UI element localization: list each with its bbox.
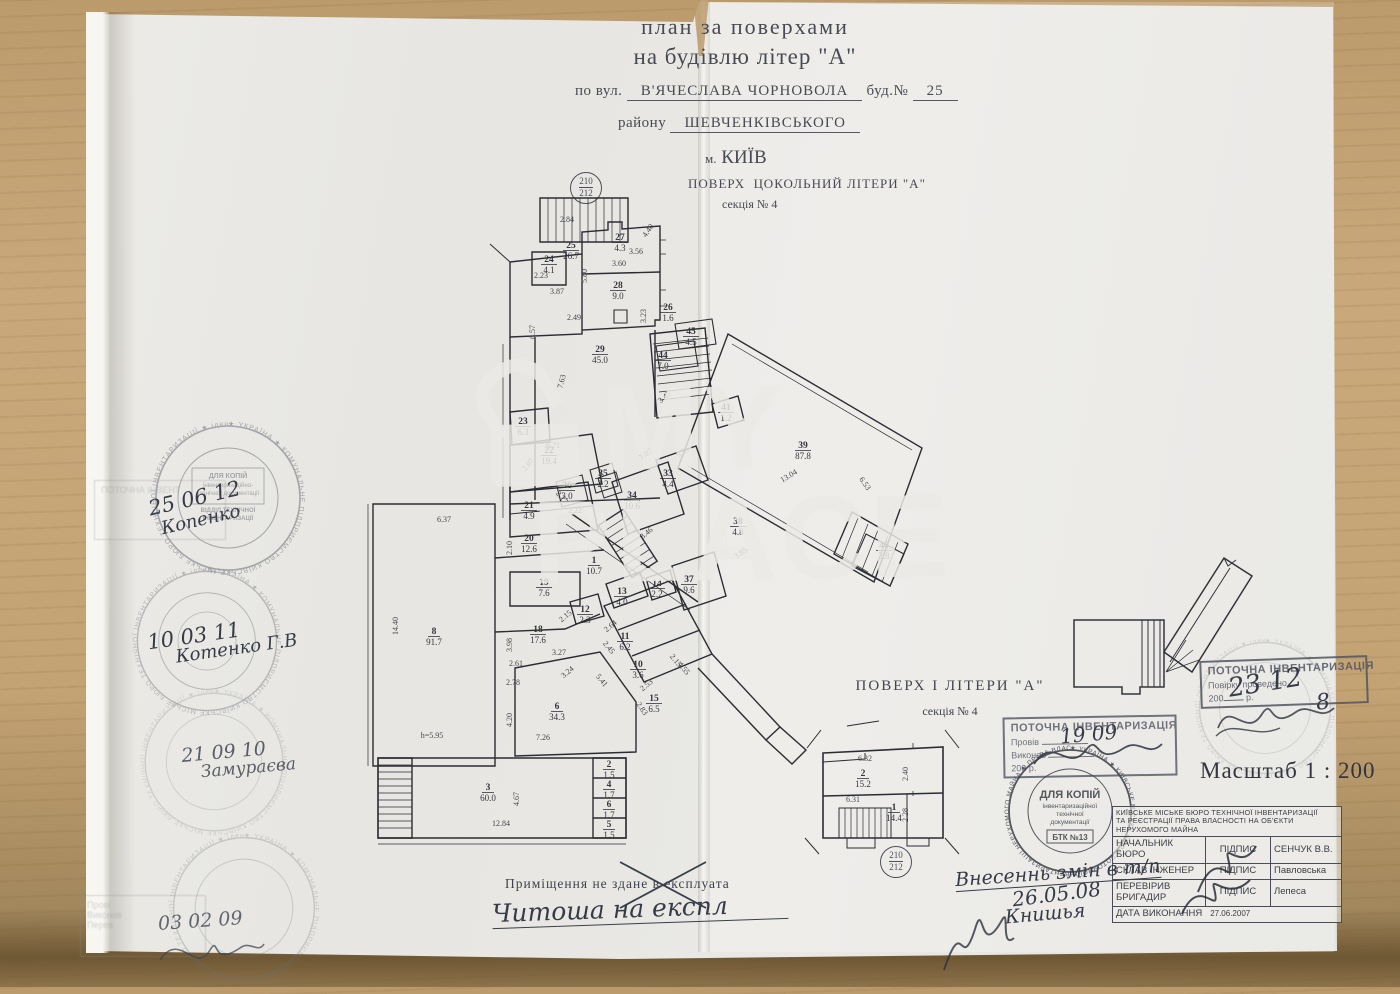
svg-text:2.2: 2.2 <box>597 479 608 489</box>
district-value: ШЕВЧЕНКІВСЬКОГО <box>670 115 860 133</box>
room-label: 261.6 <box>660 303 676 323</box>
svg-text:2: 2 <box>861 769 866 779</box>
room-label: 134.0 <box>614 587 630 607</box>
svg-text:34: 34 <box>627 491 637 501</box>
svg-text:37: 37 <box>684 575 694 585</box>
dimension-label: 7.63 <box>555 373 567 389</box>
svg-text:1.6: 1.6 <box>662 313 674 323</box>
street-value: В'ЯЧЕСЛАВА ЧОРНОВОЛА <box>627 83 863 101</box>
svg-text:34.3: 34.3 <box>549 712 565 722</box>
svg-text:15: 15 <box>649 694 659 704</box>
room-label: 1817.6 <box>530 625 546 645</box>
room-label: 334.4 <box>660 469 676 489</box>
date-row: ДАТА ВИКОНАННЯ 27.06.2007 <box>1113 906 1342 922</box>
room-label: 114.4 <box>886 803 902 823</box>
svg-text:12: 12 <box>580 605 590 615</box>
room-label: 122.3 <box>577 605 593 625</box>
dimension-label: 1.07 <box>637 446 654 461</box>
date-value: 27.06.2007 <box>1210 909 1250 918</box>
svg-text:33: 33 <box>663 469 673 479</box>
svg-text:19.4: 19.4 <box>541 456 557 466</box>
room-label: 289.0 <box>610 281 626 301</box>
dimension-label: 3.87 <box>550 287 564 296</box>
signature-cell: ПІДПИС <box>1206 879 1271 906</box>
floor1-sheet-badge: 210 212 <box>880 846 912 878</box>
dimension-label: 2.78 <box>506 678 520 687</box>
dimension-label: 2.40 <box>901 767 910 781</box>
dimension-label: 2.07 <box>520 456 536 473</box>
floor1-sheet-top: 210 <box>889 851 903 861</box>
table-row: ПЕРЕВІРИВ БРИГАДИР ПІДПИС Лепеса <box>1113 879 1342 906</box>
name-cell: Лепеса <box>1271 879 1342 906</box>
for-copies-line2: інвентаризаційної <box>1043 802 1098 810</box>
svg-text:14: 14 <box>652 579 662 589</box>
room-label: 3987.8 <box>795 441 811 461</box>
svg-text:1.2: 1.2 <box>720 413 731 423</box>
svg-text:24: 24 <box>544 255 554 265</box>
building-number: 25 <box>913 83 958 101</box>
scanned-floor-plan-document: план за поверхами на будівлю літер "А" п… <box>0 0 1400 987</box>
room-label: 634.3 <box>549 702 565 722</box>
svg-text:20: 20 <box>524 534 534 544</box>
dimension-label: 2.64 <box>602 618 619 634</box>
dimension-label: 6.53 <box>857 475 872 492</box>
svg-text:4.5: 4.5 <box>685 337 697 347</box>
svg-text:36: 36 <box>562 481 572 491</box>
room-label: 41.7 <box>603 780 615 800</box>
svg-text:10.7: 10.7 <box>586 566 602 576</box>
svg-text:38: 38 <box>733 517 743 527</box>
svg-text:1.5: 1.5 <box>603 770 615 780</box>
dimension-label: 3.56 <box>629 247 643 256</box>
signature-cell: ПІДПИС <box>1206 837 1271 864</box>
svg-text:25: 25 <box>566 241 576 251</box>
table-row: ДАТА ВИКОНАННЯ 27.06.2007 <box>1113 906 1342 922</box>
svg-text:2: 2 <box>607 760 612 770</box>
svg-text:4.9: 4.9 <box>523 511 535 521</box>
svg-text:1.7: 1.7 <box>603 810 615 820</box>
svg-text:7.0: 7.0 <box>657 361 669 371</box>
svg-text:21: 21 <box>524 501 534 511</box>
svg-text:87.8: 87.8 <box>795 451 811 461</box>
room-label: 197.6 <box>536 578 552 598</box>
svg-text:35: 35 <box>598 469 608 479</box>
svg-text:44: 44 <box>658 351 668 361</box>
dimension-label: 6.32 <box>858 754 872 763</box>
svg-text:1.5: 1.5 <box>603 830 615 840</box>
svg-text:91.7: 91.7 <box>426 637 442 647</box>
district-label: району <box>618 115 666 131</box>
dimension-label: 6.57 <box>528 325 537 339</box>
dimension-label: 5.80 <box>580 269 589 283</box>
svg-text:7.6: 7.6 <box>538 588 550 598</box>
dimension-label: 3.60 <box>612 259 626 268</box>
role-cell: ПЕРЕВІРИВ БРИГАДИР <box>1113 879 1206 906</box>
room-label: 891.7 <box>426 627 442 647</box>
scale-label: Масштаб 1 : 200 <box>1200 758 1375 784</box>
dimension-label: 2.23 <box>534 271 548 280</box>
dimension-label: 2.84 <box>560 215 574 224</box>
svg-text:28: 28 <box>613 281 623 291</box>
room-label: 142.2 <box>649 579 665 599</box>
svg-text:39: 39 <box>798 441 808 451</box>
room-label: 110.7 <box>586 556 602 576</box>
svg-text:5: 5 <box>607 820 612 830</box>
room-label: 21.5 <box>603 760 615 780</box>
stamp-right-year: 200 <box>1208 693 1223 704</box>
dimension-label: 2.45 <box>601 639 617 656</box>
dimension-label: 6.37 <box>437 515 451 524</box>
dimension-label: 14.40 <box>391 617 400 635</box>
dimension-label: 2.28 <box>901 808 910 822</box>
room-label: 384.8 <box>730 517 746 537</box>
dimension-label: 12.84 <box>492 819 510 828</box>
dimension-label: 5.41 <box>594 672 610 689</box>
bti-header: КИЇВСЬКЕ МІСЬКЕ БЮРО ТЕХНІЧНОЇ ІНВЕНТАРИ… <box>1113 807 1342 837</box>
district-line: району ШЕВЧЕНКІВСЬКОГО <box>618 115 860 132</box>
room-label: 215.2 <box>855 769 871 789</box>
city-value: КИЇВ <box>721 147 766 168</box>
not-commissioned-note: Приміщення не здане в експлуата <box>505 876 730 892</box>
svg-text:15.2: 15.2 <box>855 779 871 789</box>
date-label: ДАТА ВИКОНАННЯ <box>1116 908 1202 919</box>
svg-text:8: 8 <box>432 627 437 637</box>
svg-text:23: 23 <box>518 417 528 427</box>
street-line: по вул. В'ЯЧЕСЛАВА ЧОРНОВОЛА буд.№ 25 <box>575 83 958 100</box>
svg-text:17.6: 17.6 <box>530 635 546 645</box>
street-label: по вул. <box>575 83 622 99</box>
dimension-label: 2.22 <box>568 506 582 515</box>
svg-text:2.2: 2.2 <box>651 589 662 599</box>
dimension-label: 6.71 <box>546 441 560 450</box>
svg-text:4: 4 <box>607 780 612 790</box>
dimension-label: 6.31 <box>846 795 860 804</box>
svg-text:60.0: 60.0 <box>480 793 496 803</box>
svg-text:14.4: 14.4 <box>886 813 902 823</box>
dimension-label: 5.26 <box>674 444 691 459</box>
name-cell: Павловська <box>1271 864 1342 880</box>
room-label: 411.2 <box>718 403 734 423</box>
svg-text:1: 1 <box>892 803 897 813</box>
svg-text:12.6: 12.6 <box>521 544 537 554</box>
svg-text:6: 6 <box>607 800 612 810</box>
svg-text:45.0: 45.0 <box>592 355 608 365</box>
dimension-label: 3.85 <box>732 545 749 560</box>
name-cell: СЕНЧУК В.В. <box>1271 837 1342 864</box>
dimension-label: 3.23 <box>639 309 648 323</box>
floor1-plan: 215.2114.46.322.406.312.28 <box>795 718 975 868</box>
room-label: 2012.6 <box>521 534 537 554</box>
svg-text:4.8: 4.8 <box>732 527 744 537</box>
svg-text:4.4: 4.4 <box>662 479 674 489</box>
dimension-label: 3.46 <box>638 525 655 541</box>
room-label: 103.6 <box>630 660 646 680</box>
svg-text:26.7: 26.7 <box>563 251 579 261</box>
svg-text:45: 45 <box>686 327 696 337</box>
document-title-line2: на будівлю літер "А" <box>575 44 915 70</box>
signature-cell: ПІДПИС <box>1206 864 1271 880</box>
svg-text:2.8: 2.8 <box>878 551 890 561</box>
room-label: 236.3 <box>515 417 531 437</box>
svg-text:41: 41 <box>721 403 731 413</box>
svg-text:46: 46 <box>879 541 889 551</box>
svg-text:6: 6 <box>555 702 560 712</box>
room-label: 3410.6 <box>624 491 640 511</box>
dimension-label: 13.04 <box>779 467 799 484</box>
dimension-label: 2.61 <box>509 659 523 668</box>
svg-text:6.2: 6.2 <box>619 642 630 652</box>
svg-text:27: 27 <box>615 233 625 243</box>
bti-header-line3: НЕРУХОМОГО МАЙНА <box>1116 826 1338 834</box>
room-label: 214.9 <box>521 501 537 521</box>
room-label: 274.3 <box>612 233 628 253</box>
dimension-label: 4.40 <box>640 222 655 239</box>
stamp-right-hand-year: 8 <box>1315 689 1332 715</box>
room-label: 379.6 <box>681 575 697 595</box>
dimension-label: 3.45 <box>656 389 673 405</box>
dimension-label: 3.24 <box>559 664 576 680</box>
svg-text:10: 10 <box>633 660 643 670</box>
room-label: 2945.0 <box>592 345 608 365</box>
building-label: буд.№ <box>867 83 909 99</box>
room-label: 2526.7 <box>563 241 579 261</box>
dimension-label: 3.98 <box>505 638 514 652</box>
dimension-label: 4.20 <box>505 713 514 727</box>
dimension-label: 2.49 <box>567 313 581 322</box>
svg-text:29: 29 <box>595 345 605 355</box>
svg-text:10.6: 10.6 <box>624 501 640 511</box>
svg-text:4.3: 4.3 <box>614 243 626 253</box>
svg-text:4.0: 4.0 <box>616 597 628 607</box>
svg-text:9.6: 9.6 <box>683 585 695 595</box>
svg-text:26: 26 <box>663 303 673 313</box>
room-label: 61.7 <box>603 800 615 820</box>
ghost-row-1: Прові <box>87 900 199 910</box>
svg-text:18: 18 <box>533 625 543 635</box>
dimension-label: 3.27 <box>552 648 566 657</box>
for-copies-line1: ДЛЯ КОПІЙ <box>1040 788 1101 801</box>
room-label: 462.8 <box>876 541 892 561</box>
svg-text:6.5: 6.5 <box>648 704 660 714</box>
for-copies-btk: БТК №13 <box>1052 833 1088 842</box>
svg-text:3.6: 3.6 <box>632 670 644 680</box>
room-label: 447.0 <box>655 351 671 371</box>
dimension-label: 2.15 <box>557 608 574 624</box>
svg-text:1: 1 <box>592 556 597 566</box>
svg-text:6.3: 6.3 <box>517 427 529 437</box>
dimension-label: 2.10 <box>505 541 514 555</box>
room-label: 360.0 <box>480 783 496 803</box>
svg-text:19: 19 <box>539 578 549 588</box>
for-copies-line4: документації <box>1050 818 1089 826</box>
svg-text:2.3: 2.3 <box>579 615 591 625</box>
svg-text:13: 13 <box>617 587 627 597</box>
city-label: м. <box>705 151 716 166</box>
dimension-label: 4.67 <box>512 792 521 806</box>
room-label: 352.2 <box>595 469 611 489</box>
city-line: м. КИЇВ <box>705 147 767 169</box>
svg-text:3: 3 <box>486 783 491 793</box>
svg-text:11: 11 <box>621 632 630 642</box>
svg-text:9.0: 9.0 <box>612 291 624 301</box>
room-label: 51.5 <box>603 820 615 840</box>
room-label: 454.5 <box>683 327 699 347</box>
svg-text:1.7: 1.7 <box>603 790 615 800</box>
dimension-label: 7.26 <box>536 733 550 742</box>
document-title-line1: план за поверхами <box>575 14 915 40</box>
dimension-label: h=5.95 <box>421 731 444 740</box>
floor1-sheet-bottom: 212 <box>889 861 903 873</box>
for-copies-line3: технічної <box>1056 810 1084 818</box>
